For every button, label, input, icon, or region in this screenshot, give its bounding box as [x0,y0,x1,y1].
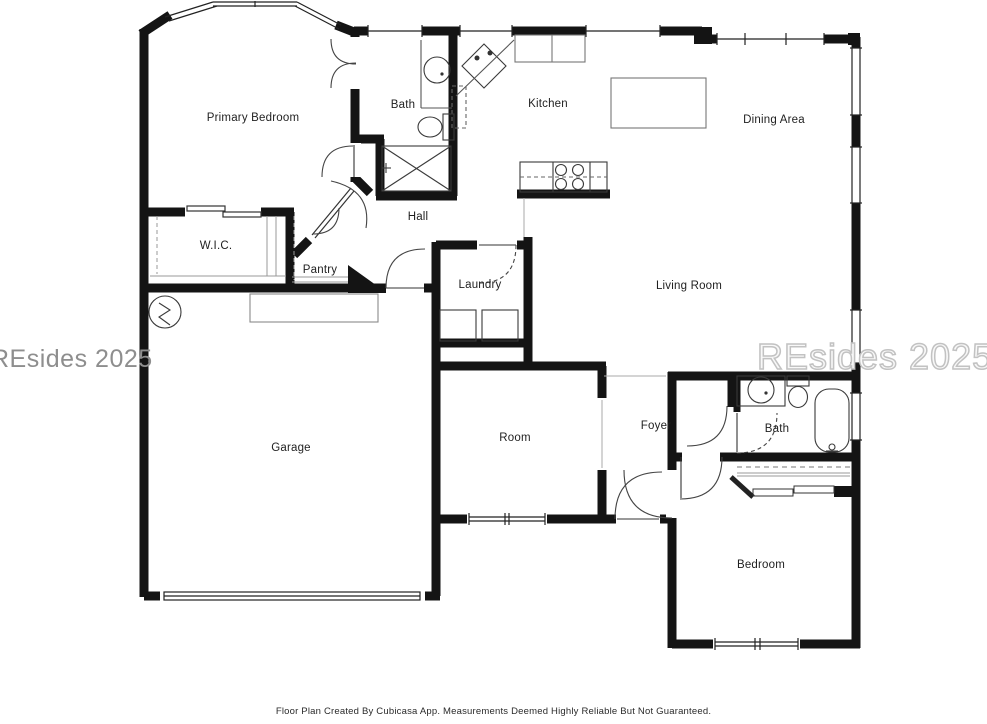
window-top-3 [586,25,660,37]
window-right-4 [850,393,862,440]
room-label-pantry: Pantry [303,264,337,276]
floor-plan-page: Primary Bedroom Bath Kitchen Dining Area… [0,0,987,724]
garage-door [160,590,425,603]
dryer-icon [482,310,518,341]
window-top-2 [460,25,512,37]
walls-layer [140,15,860,648]
room-label-laundry: Laundry [459,279,502,291]
room-label-dining-area: Dining Area [743,114,805,126]
room-label-primary-bedroom: Primary Bedroom [207,112,299,124]
foyer-side-door [624,470,678,518]
garage-entry-door [386,249,425,294]
room-label-bedroom: Bedroom [737,559,785,571]
disclaimer-text: Floor Plan Created By Cubicasa App. Meas… [0,706,987,717]
window-top-4 [717,33,824,45]
windows-layer [160,1,862,650]
kitchen-sink-icon [452,40,514,128]
room-label-kitchen: Kitchen [528,98,568,110]
fixtures-layer [149,35,850,497]
bedroom-door [680,452,722,499]
primary-bedroom-door [322,143,361,177]
pantry-sliding-door [312,181,367,238]
shower-icon [382,146,451,191]
primary-bath-sink-icon [421,40,452,108]
front-door [615,472,662,525]
washer-icon [440,310,476,341]
laundry-door [477,239,517,283]
watermark-right: REsides 2025 [757,336,987,378]
window-right-1 [850,48,862,115]
room-label-hall: Hall [408,211,429,223]
french-doors [331,37,361,89]
wic-sliding-doors [185,205,261,219]
window-right-2 [850,147,862,203]
bay-window [165,1,341,29]
bath2-toilet-icon [787,376,809,408]
window-top-1 [368,25,422,37]
kitchen-island [611,78,706,128]
garage-landing [250,294,378,322]
kitchen-counter [515,35,585,62]
stove-icon [520,162,607,192]
window-room-south [467,513,547,525]
room-label-foyer: Foyer [641,420,671,432]
room-label-garage: Garage [271,442,311,454]
water-heater-icon [149,296,181,328]
window-bedroom-south [713,638,800,650]
room-label-wic: W.I.C. [200,240,233,252]
foyer-closet-door [687,406,727,446]
room-label-bath-2: Bath [765,423,789,435]
watermark-left: REsides 2025 [0,345,153,374]
room-label-bath-primary: Bath [391,99,415,111]
bedroom-closet [731,467,850,497]
bathtub-icon [815,389,849,452]
room-label-room: Room [499,432,530,444]
room-label-living-room: Living Room [656,280,722,292]
